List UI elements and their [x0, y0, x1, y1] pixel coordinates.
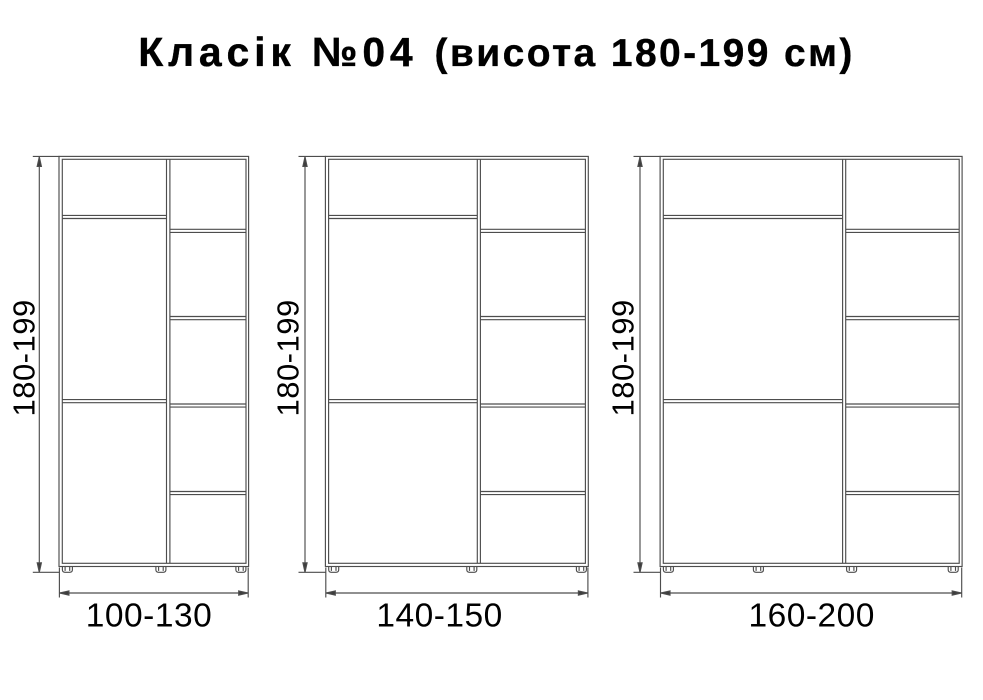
svg-text:140-150: 140-150: [376, 598, 502, 635]
svg-text:160-200: 160-200: [748, 598, 874, 635]
svg-text:100-130: 100-130: [86, 598, 212, 635]
svg-text:180-199: 180-199: [6, 299, 41, 416]
svg-text:180-199: 180-199: [270, 299, 305, 416]
svg-text:180-199: 180-199: [605, 299, 640, 416]
